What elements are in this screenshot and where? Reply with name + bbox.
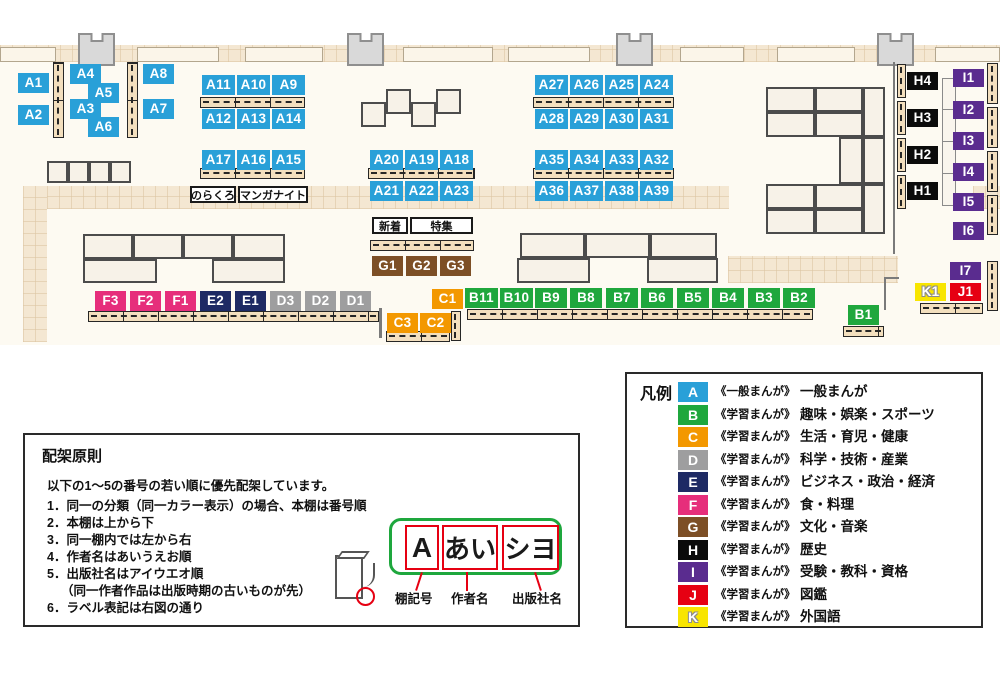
legend-chip-C: C xyxy=(678,427,708,447)
shelf-label-D3: D3 xyxy=(270,291,301,311)
legend-box: 凡例 A《一般まんが》一般まんがB《学習まんが》趣味・娯楽・スポーツC《学習まん… xyxy=(625,372,983,628)
wall-window xyxy=(680,47,744,62)
table xyxy=(411,102,436,127)
legend-category: 歴史 xyxy=(800,540,827,560)
table xyxy=(766,112,815,137)
wall-window xyxy=(0,47,56,62)
bookshelf xyxy=(451,311,461,341)
shelf-label-A32: A32 xyxy=(640,150,673,170)
table xyxy=(233,234,285,259)
table xyxy=(89,161,110,183)
bookshelf xyxy=(897,138,906,172)
legend-type: 《学習まんが》 xyxy=(715,562,796,582)
shelf-label-A29: A29 xyxy=(570,109,603,129)
legend-category: 図鑑 xyxy=(800,585,827,605)
label-author: あい xyxy=(442,525,498,570)
shelf-label-A24: A24 xyxy=(640,75,673,95)
shelf-label-J1: J1 xyxy=(950,283,981,301)
table xyxy=(133,234,183,259)
shelf-label-A31: A31 xyxy=(640,109,673,129)
bookshelf xyxy=(88,311,379,322)
legend-type: 《学習まんが》 xyxy=(715,405,796,425)
shelf-label-B9: B9 xyxy=(535,288,567,308)
shelf-label-B7: B7 xyxy=(606,288,638,308)
shelf-label-A20: A20 xyxy=(370,150,403,170)
legend-row-C: C《学習まんが》生活・育児・健康 xyxy=(627,427,981,447)
shelf-label-C1: C1 xyxy=(432,289,463,309)
legend-type: 《学習まんが》 xyxy=(715,427,796,447)
shelf-label-A37: A37 xyxy=(570,181,603,201)
table xyxy=(83,234,133,259)
legend-type: 《学習まんが》 xyxy=(715,540,796,560)
callout-tokushu: 特集 xyxy=(410,217,473,234)
wall-line xyxy=(884,277,886,310)
shelf-label-A23: A23 xyxy=(440,181,473,201)
wall-line xyxy=(379,308,382,338)
shelf-label-A38: A38 xyxy=(605,181,638,201)
caption-shelf-code: 棚記号 xyxy=(395,588,433,607)
shelf-label-A14: A14 xyxy=(272,109,305,129)
table xyxy=(766,209,815,234)
shelf-label-A33: A33 xyxy=(605,150,638,170)
bookshelf xyxy=(370,240,474,251)
walkway xyxy=(23,186,47,342)
pillar xyxy=(78,33,115,66)
shelf-label-D2: D2 xyxy=(305,291,336,311)
legend-category: 科学・技術・産業 xyxy=(800,450,908,470)
shelf-label-I1: I1 xyxy=(953,69,984,87)
bookshelf xyxy=(200,97,305,108)
table xyxy=(839,137,863,184)
principles-box: 配架原則 以下の1～5の番号の若い順に優先配架しています。 1．同一の分類（同一… xyxy=(23,433,580,627)
shelf-label-B2: B2 xyxy=(783,288,815,308)
table xyxy=(436,89,461,114)
table xyxy=(863,87,885,137)
principles-intro: 以下の1～5の番号の若い順に優先配架しています。 xyxy=(47,475,334,494)
legend-row-D: D《学習まんが》科学・技術・産業 xyxy=(627,450,981,470)
legend-category: ビジネス・政治・経済 xyxy=(800,472,935,492)
table xyxy=(212,259,285,283)
legend-category: 文化・音楽 xyxy=(800,517,868,537)
table xyxy=(517,258,590,283)
bookshelf xyxy=(53,62,64,138)
wall-window xyxy=(935,47,1000,62)
wall-window xyxy=(777,47,855,62)
label-shelf-code: A xyxy=(405,525,439,570)
shelf-label-F2: F2 xyxy=(130,291,161,311)
shelf-label-D1: D1 xyxy=(340,291,371,311)
callout-norakuro: のらくろ xyxy=(190,186,236,203)
bookshelf xyxy=(987,63,998,104)
shelf-label-B6: B6 xyxy=(641,288,673,308)
shelf-label-A10: A10 xyxy=(237,75,270,95)
shelf-label-G3: G3 xyxy=(440,256,471,276)
table xyxy=(585,233,650,258)
shelf-label-A28: A28 xyxy=(535,109,568,129)
shelf-label-A22: A22 xyxy=(405,181,438,201)
shelf-label-A27: A27 xyxy=(535,75,568,95)
table xyxy=(68,161,89,183)
callout-manga-night: マンガナイト xyxy=(238,186,308,203)
shelf-label-H1: H1 xyxy=(907,182,938,200)
shelf-label-I5: I5 xyxy=(953,193,984,211)
table xyxy=(647,258,718,283)
legend-row-G: G《学習まんが》文化・音楽 xyxy=(627,517,981,537)
shelf-label-I2: I2 xyxy=(953,101,984,119)
legend-row-A: A《一般まんが》一般まんが xyxy=(627,382,981,402)
legend-row-E: E《学習まんが》ビジネス・政治・経済 xyxy=(627,472,981,492)
table xyxy=(110,161,131,183)
legend-type: 《学習まんが》 xyxy=(715,607,796,627)
shelf-label-A17: A17 xyxy=(202,150,235,170)
bookshelf xyxy=(897,64,906,98)
bookshelf xyxy=(897,175,906,209)
pillar xyxy=(347,33,384,66)
pillar xyxy=(616,33,653,66)
legend-type: 《一般まんが》 xyxy=(715,382,796,402)
pillar-notch xyxy=(90,33,103,42)
bookshelf xyxy=(920,303,983,314)
table xyxy=(83,259,157,283)
table xyxy=(386,89,411,114)
caption-publisher: 出版社名 xyxy=(512,588,562,607)
shelf-label-A3: A3 xyxy=(70,99,101,119)
label-publisher: シヨ xyxy=(502,525,559,570)
principles-title: 配架原則 xyxy=(42,445,102,466)
legend-chip-I: I xyxy=(678,562,708,582)
shelf-label-H2: H2 xyxy=(907,146,938,164)
table xyxy=(183,234,233,259)
book-ribbon xyxy=(361,563,375,587)
bookshelf xyxy=(843,326,884,337)
shelf-label-I4: I4 xyxy=(953,163,984,181)
bookshelf xyxy=(533,97,674,108)
legend-row-F: F《学習まんが》食・料理 xyxy=(627,495,981,515)
shelf-label-A18: A18 xyxy=(440,150,473,170)
shelf-label-B1: B1 xyxy=(848,305,879,325)
shelf-label-A36: A36 xyxy=(535,181,568,201)
shelf-label-K1: K1 xyxy=(915,283,946,301)
table xyxy=(766,184,815,209)
shelf-label-F1: F1 xyxy=(165,291,196,311)
legend-type: 《学習まんが》 xyxy=(715,450,796,470)
principles-item: 3．同一棚内では左から右 xyxy=(47,532,366,549)
table xyxy=(766,87,815,112)
legend-row-K: K《学習まんが》外国語 xyxy=(627,607,981,627)
table xyxy=(863,137,885,184)
legend-chip-G: G xyxy=(678,517,708,537)
table xyxy=(863,184,885,234)
shelf-label-A8: A8 xyxy=(143,64,174,84)
legend-chip-A: A xyxy=(678,382,708,402)
shelf-label-B8: B8 xyxy=(570,288,602,308)
pillar-notch xyxy=(359,33,372,42)
legend-category: 食・料理 xyxy=(800,495,854,515)
shelf-label-A35: A35 xyxy=(535,150,568,170)
shelf-label-A2: A2 xyxy=(18,105,49,125)
principles-item: 6．ラベル表記は右図の通り xyxy=(47,600,366,617)
shelf-label-I6: I6 xyxy=(953,222,984,240)
pillar-notch xyxy=(889,33,902,42)
shelf-label-E1: E1 xyxy=(235,291,266,311)
table xyxy=(815,209,863,234)
legend-category: 外国語 xyxy=(800,607,841,627)
shelf-label-B4: B4 xyxy=(712,288,744,308)
wall-line xyxy=(893,62,895,254)
callout-shinchaku: 新着 xyxy=(372,217,408,234)
legend-row-I: I《学習まんが》受験・教科・資格 xyxy=(627,562,981,582)
shelf-label-A15: A15 xyxy=(272,150,305,170)
principles-item: 2．本棚は上から下 xyxy=(47,515,366,532)
shelf-label-G1: G1 xyxy=(372,256,403,276)
legend-type: 《学習まんが》 xyxy=(715,517,796,537)
shelf-label-A26: A26 xyxy=(570,75,603,95)
shelf-label-A7: A7 xyxy=(143,99,174,119)
legend-chip-H: H xyxy=(678,540,708,560)
principles-item: 5．出版社名はアイウエオ順 xyxy=(47,566,366,583)
bookshelf xyxy=(897,101,906,135)
wall-window xyxy=(403,47,493,62)
shelf-label-A6: A6 xyxy=(88,117,119,137)
shelf-label-I3: I3 xyxy=(953,132,984,150)
bookshelf xyxy=(127,62,138,138)
caption-author: 作者名 xyxy=(451,588,489,607)
shelf-label-A4: A4 xyxy=(70,64,101,84)
legend-chip-D: D xyxy=(678,450,708,470)
pillar xyxy=(877,33,914,66)
legend-chip-E: E xyxy=(678,472,708,492)
table xyxy=(361,102,386,127)
shelf-label-B5: B5 xyxy=(677,288,709,308)
bookshelf xyxy=(987,107,998,148)
legend-type: 《学習まんが》 xyxy=(715,585,796,605)
shelf-label-C2: C2 xyxy=(420,313,451,333)
shelf-label-F3: F3 xyxy=(95,291,126,311)
book-top-edge xyxy=(336,551,370,559)
legend-type: 《学習まんが》 xyxy=(715,472,796,492)
legend-row-J: J《学習まんが》図鑑 xyxy=(627,585,981,605)
shelf-label-I7: I7 xyxy=(950,262,981,280)
table xyxy=(520,233,585,258)
legend-category: 一般まんが xyxy=(800,382,868,402)
principles-item: 4．作者名はあいうえお順 xyxy=(47,549,366,566)
table xyxy=(815,184,863,209)
shelf-label-B3: B3 xyxy=(748,288,780,308)
shelf-label-C3: C3 xyxy=(387,313,418,333)
shelf-label-H4: H4 xyxy=(907,72,938,90)
shelf-label-B10: B10 xyxy=(500,288,533,308)
shelf-label-A1: A1 xyxy=(18,73,49,93)
bookshelf xyxy=(987,151,998,192)
label-highlight-circle xyxy=(356,587,375,606)
shelf-label-A25: A25 xyxy=(605,75,638,95)
shelf-label-A30: A30 xyxy=(605,109,638,129)
legend-row-H: H《学習まんが》歴史 xyxy=(627,540,981,560)
principles-item: 1．同一の分類（同一カラー表示）の場合、本棚は番号順 xyxy=(47,498,366,515)
table xyxy=(47,161,68,183)
legend-type: 《学習まんが》 xyxy=(715,495,796,515)
bookshelf xyxy=(987,261,998,311)
legend-row-B: B《学習まんが》趣味・娯楽・スポーツ xyxy=(627,405,981,425)
walkway xyxy=(728,256,898,283)
shelf-label-H3: H3 xyxy=(907,109,938,127)
shelf-label-A12: A12 xyxy=(202,109,235,129)
shelf-label-A34: A34 xyxy=(570,150,603,170)
shelf-label-B11: B11 xyxy=(465,288,498,308)
principles-item: （同一作者作品は出版時期の古いものが先） xyxy=(47,583,366,600)
legend-chip-B: B xyxy=(678,405,708,425)
legend-category: 受験・教科・資格 xyxy=(800,562,908,582)
bookshelf xyxy=(467,309,813,320)
legend-chip-J: J xyxy=(678,585,708,605)
wall-window xyxy=(508,47,590,62)
table xyxy=(815,112,863,137)
shelf-label-A11: A11 xyxy=(202,75,235,95)
shelf-label-A16: A16 xyxy=(237,150,270,170)
legend-chip-F: F xyxy=(678,495,708,515)
shelf-label-E2: E2 xyxy=(200,291,231,311)
wall-window xyxy=(137,47,219,62)
principles-items: 1．同一の分類（同一カラー表示）の場合、本棚は番号順2．本棚は上から下3．同一棚… xyxy=(47,498,366,617)
legend-chip-K: K xyxy=(678,607,708,627)
table xyxy=(815,87,863,112)
shelf-label-A21: A21 xyxy=(370,181,403,201)
shelf-label-A19: A19 xyxy=(405,150,438,170)
shelf-label-A39: A39 xyxy=(640,181,673,201)
shelf-label-A9: A9 xyxy=(272,75,305,95)
floor-map: A1A2A4A5A3A6A8A7A11A10A9A12A13A14A17A16A… xyxy=(0,0,1000,700)
pillar-notch xyxy=(628,33,641,42)
table xyxy=(650,233,717,258)
wall-window xyxy=(245,47,323,62)
shelf-label-A13: A13 xyxy=(237,109,270,129)
label-example-frame: A あい シヨ xyxy=(389,518,562,575)
legend-category: 生活・育児・健康 xyxy=(800,427,908,447)
shelf-label-G2: G2 xyxy=(406,256,437,276)
wall-line xyxy=(884,277,899,279)
bookshelf xyxy=(987,195,998,235)
legend-category: 趣味・娯楽・スポーツ xyxy=(800,405,935,425)
